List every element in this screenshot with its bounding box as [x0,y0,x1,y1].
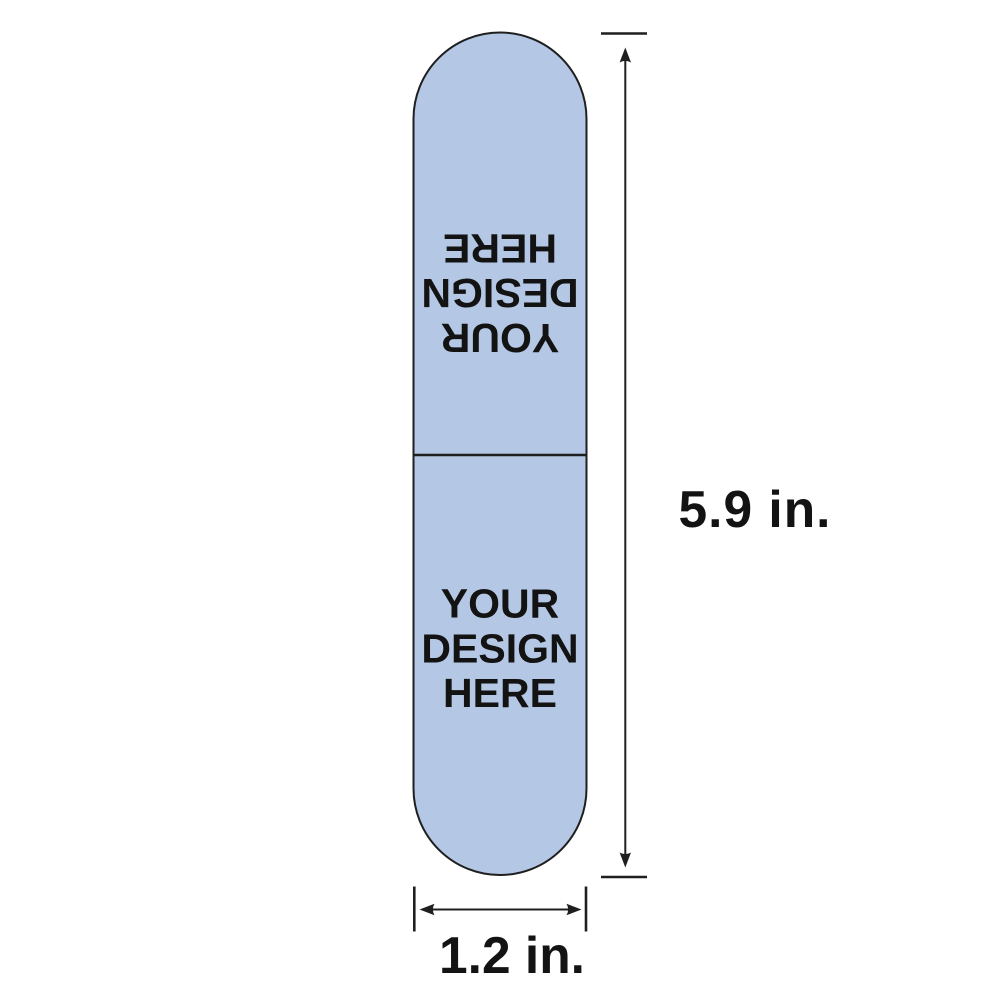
svg-text:HERE: HERE [443,670,557,716]
svg-text:YOUR: YOUR [441,581,559,627]
svg-text:HERE: HERE [443,226,557,272]
svg-text:DESIGN: DESIGN [421,625,578,671]
svg-text:YOUR: YOUR [441,315,559,361]
svg-text:1.2 in.: 1.2 in. [439,926,585,984]
svg-text:DESIGN: DESIGN [421,270,578,316]
svg-text:5.9 in.: 5.9 in. [679,480,832,538]
